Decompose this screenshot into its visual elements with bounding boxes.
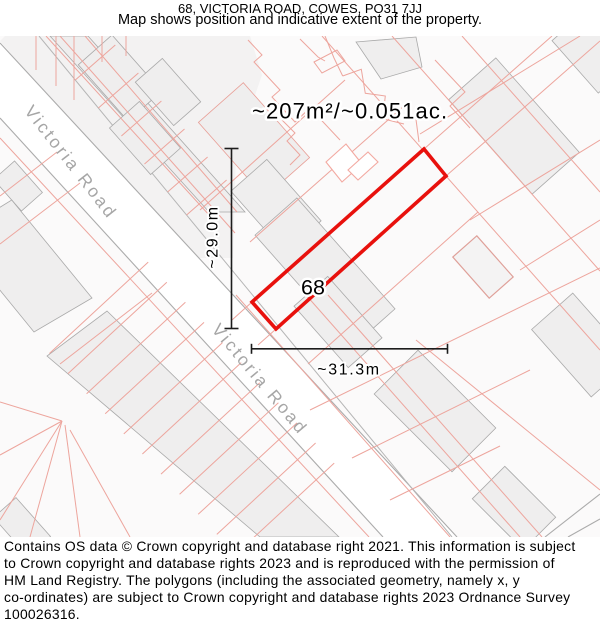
- svg-text:~29.0m: ~29.0m: [205, 205, 222, 268]
- svg-text:~31.3m: ~31.3m: [317, 362, 380, 379]
- svg-text:~207m²/~0.051ac.: ~207m²/~0.051ac.: [252, 99, 448, 124]
- svg-text:68: 68: [301, 276, 325, 300]
